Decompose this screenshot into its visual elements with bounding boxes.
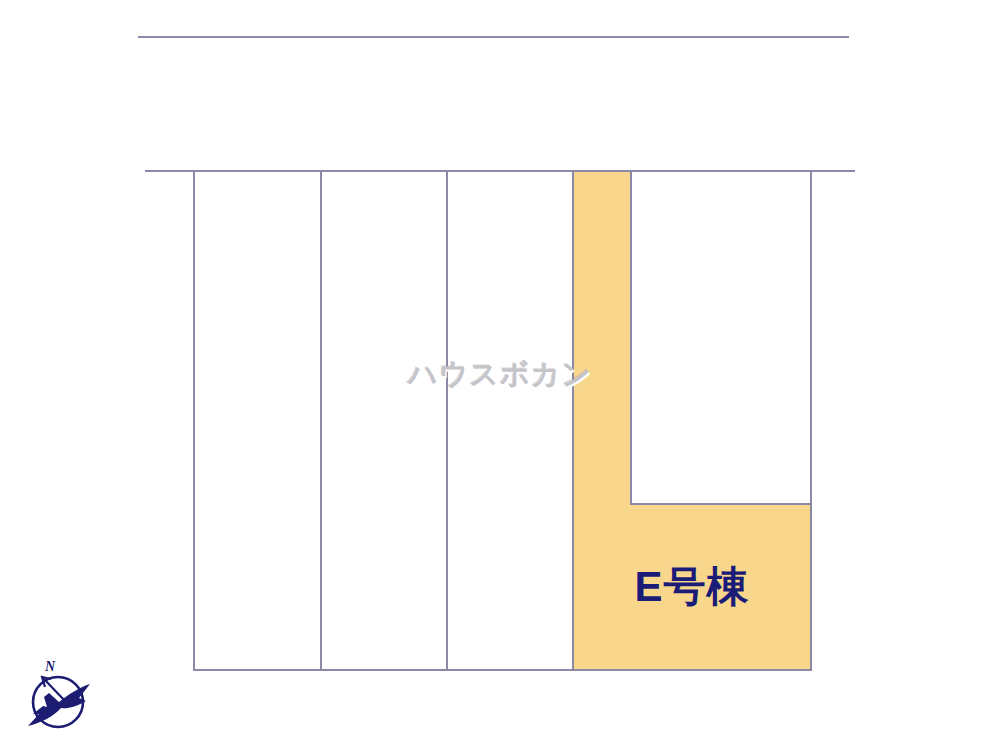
- road-edge-line: [138, 36, 849, 38]
- watermark-text: ハウスボカン: [408, 355, 592, 395]
- compass-north-label: N: [44, 659, 56, 674]
- unit-label: E号棟: [573, 505, 811, 669]
- site-plan-canvas: E号棟 ハウスボカン N: [0, 0, 1000, 750]
- plot-border-left: [193, 170, 195, 671]
- plot-divider-2: [446, 170, 448, 671]
- highlight-lot-inner-border: [630, 170, 632, 505]
- plot-divider-1: [320, 170, 322, 671]
- compass-north-icon: N: [16, 656, 100, 744]
- plot-bottom-border: [193, 669, 812, 671]
- site-boundary-line: [145, 170, 855, 172]
